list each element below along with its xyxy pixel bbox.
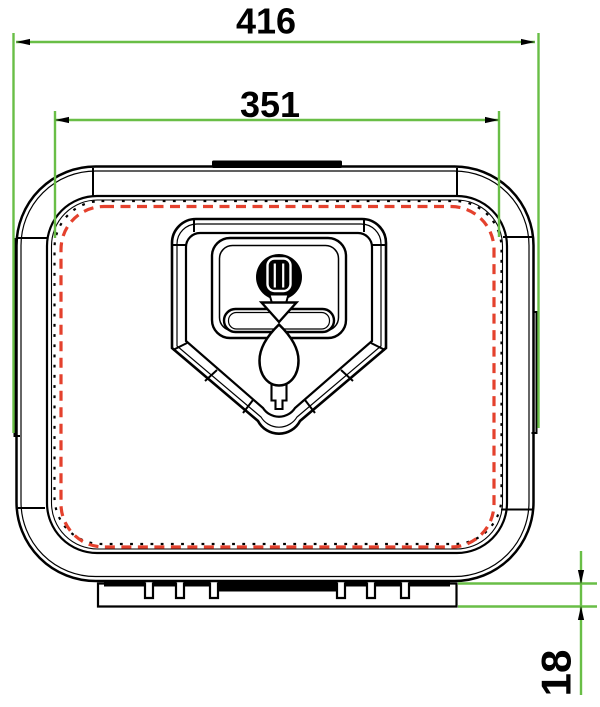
arrowhead-top: [578, 570, 584, 584]
mounting-flange: [98, 581, 457, 607]
arrowhead-left: [16, 39, 30, 45]
arrowhead-right: [521, 39, 535, 45]
latch-assembly: [172, 219, 386, 434]
lock-cylinder: [256, 254, 302, 300]
technical-drawing-page: 416 351 18: [0, 0, 600, 707]
latch-stem: [272, 384, 287, 409]
latch-knob-teardrop: [260, 325, 299, 386]
technical-drawing-canvas: 416 351 18: [0, 0, 600, 707]
dimension-overall-width-label: 416: [236, 1, 296, 42]
hinge-bar: [218, 581, 337, 592]
arrowhead-right: [485, 117, 499, 123]
arrowhead-bottom: [578, 606, 584, 620]
top-handle-tab: [212, 161, 342, 169]
dimension-inner-width-label: 351: [240, 84, 300, 125]
arrowhead-left: [55, 117, 69, 123]
dimension-flange-height-label: 18: [533, 650, 580, 697]
